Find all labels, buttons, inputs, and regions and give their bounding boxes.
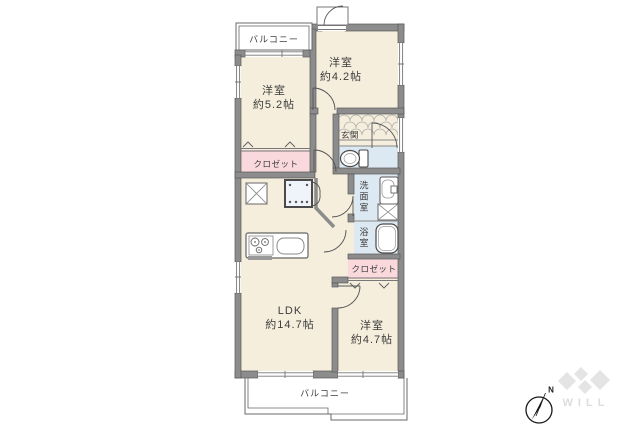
window-bedroom-a-top	[245, 50, 303, 57]
sink-icon	[277, 238, 304, 254]
window-ldk-bottom	[258, 371, 313, 378]
washroom-label: 洗面室	[358, 181, 371, 214]
hall-storage-unit	[285, 180, 312, 207]
balcony-top-label: バルコニー	[249, 33, 299, 46]
balcony-bottom-label: バルコニー	[300, 387, 350, 400]
window-bedroom-c-bottom	[338, 371, 398, 378]
ldk-area: 約14.7帖	[265, 318, 314, 332]
front-door-opening	[398, 118, 404, 152]
compass	[526, 393, 552, 423]
window-bedroom-b-right	[398, 43, 404, 85]
bedroom-a-label: 洋室 約5.2帖	[253, 84, 295, 112]
bedroom-b-area: 約4.2帖	[320, 70, 362, 84]
bedroom-c-area: 約4.7帖	[351, 333, 393, 347]
bedroom-a-area: 約5.2帖	[253, 98, 295, 112]
washer-pan-icon	[378, 204, 398, 220]
window-ldk-left	[235, 262, 241, 293]
bathroom-label: 浴室	[358, 227, 371, 249]
bedroom-c-label: 洋室 約4.7帖	[351, 319, 393, 347]
watermark-text: WILL	[563, 397, 610, 409]
ldk-name: LDK	[265, 304, 314, 318]
bedroom-b-name: 洋室	[320, 56, 362, 70]
bedroom-a-name: 洋室	[253, 84, 295, 98]
bathtub-icon	[376, 224, 398, 253]
closet-c-label: クロゼット	[351, 263, 396, 275]
kitchen-counter	[246, 233, 308, 260]
washbasin-icon	[380, 177, 398, 204]
closet-a-label: クロゼット	[253, 158, 298, 170]
toilet-icon	[341, 150, 369, 167]
watermark-logo-icon	[558, 367, 610, 394]
floor-plan-page: バルコニー 洋室 約5.2帖 洋室 約4.2帖 玄関 クロゼット 洗面室 浴室 …	[0, 0, 640, 427]
entrance-label: 玄関	[341, 129, 359, 141]
compass-north-label: N	[548, 386, 554, 395]
pipe-shaft	[246, 183, 267, 204]
ldk-label: LDK 約14.7帖	[265, 304, 314, 332]
kitchen-base	[248, 256, 272, 260]
bedroom-b-label: 洋室 約4.2帖	[320, 56, 362, 84]
bedroom-c-name: 洋室	[351, 319, 393, 333]
top-porch	[317, 6, 348, 25]
window-bedroom-a-left	[235, 66, 241, 98]
